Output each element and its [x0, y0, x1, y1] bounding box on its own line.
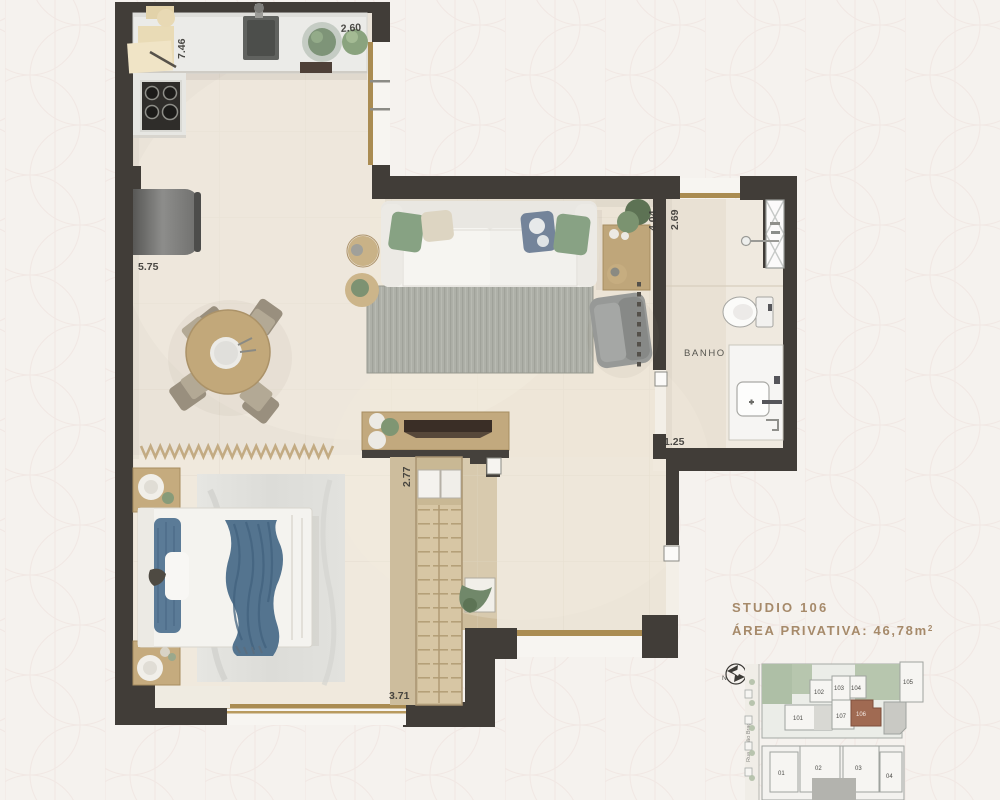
svg-text:N: N	[722, 675, 727, 682]
svg-text:02: 02	[815, 766, 822, 772]
svg-text:106: 106	[856, 712, 867, 718]
svg-text:4.04: 4.04	[647, 210, 659, 231]
svg-text:ÁREA PRIVATIVA: 46,78m2: ÁREA PRIVATIVA: 46,78m2	[732, 623, 934, 638]
svg-text:01: 01	[778, 771, 785, 777]
svg-text:03: 03	[855, 766, 862, 772]
svg-text:105: 105	[903, 680, 914, 686]
svg-text:103: 103	[834, 686, 845, 692]
svg-text:STUDIO 106: STUDIO 106	[732, 600, 828, 615]
svg-text:102: 102	[814, 690, 825, 696]
svg-text:04: 04	[886, 774, 893, 780]
svg-text:107: 107	[836, 714, 847, 720]
svg-text:5.75: 5.75	[138, 261, 159, 273]
svg-text:2.77: 2.77	[401, 466, 413, 487]
svg-text:7.46: 7.46	[176, 38, 188, 59]
svg-text:1.25: 1.25	[664, 436, 685, 448]
svg-text:3.71: 3.71	[389, 690, 410, 702]
svg-text:101: 101	[793, 716, 804, 722]
svg-text:104: 104	[851, 686, 862, 692]
svg-text:2.60: 2.60	[340, 22, 361, 35]
svg-text:BANHO: BANHO	[684, 348, 726, 359]
svg-text:2.69: 2.69	[669, 209, 681, 230]
